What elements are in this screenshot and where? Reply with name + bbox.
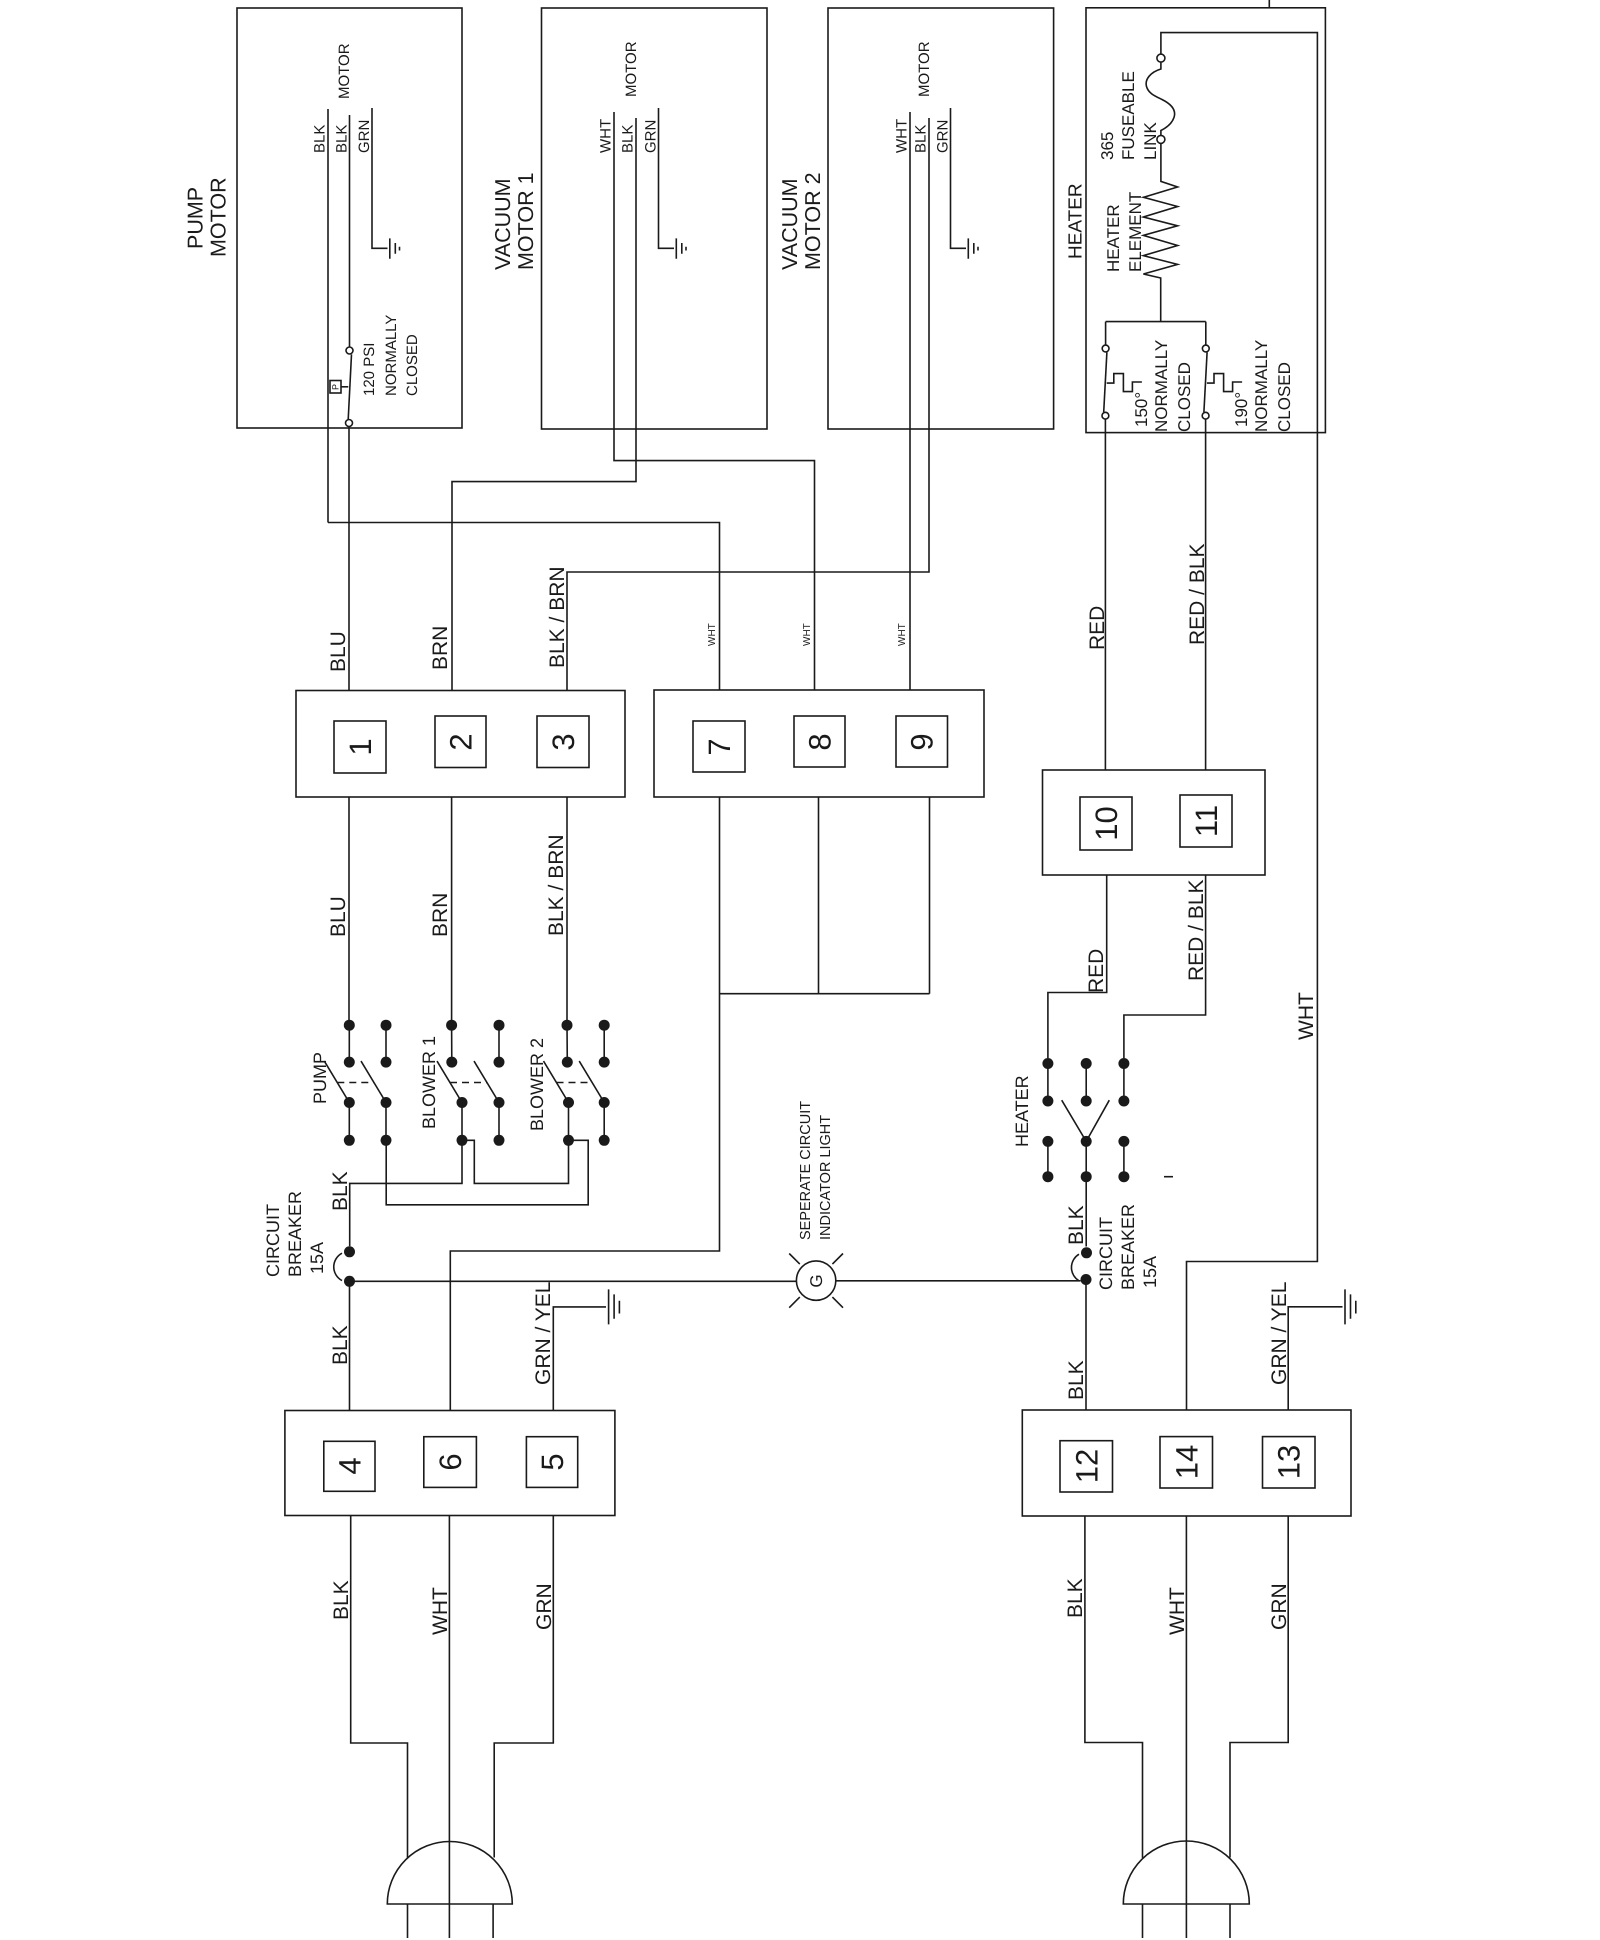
- svg-text:RED / BLK: RED / BLK: [1186, 543, 1209, 645]
- svg-text:G: G: [807, 1274, 826, 1287]
- svg-text:BLK: BLK: [329, 1171, 352, 1211]
- svg-text:WHT: WHT: [894, 119, 911, 153]
- svg-text:9: 9: [905, 733, 940, 750]
- svg-text:10: 10: [1089, 806, 1124, 840]
- svg-text:PUMP: PUMP: [310, 1052, 330, 1104]
- svg-text:GRN: GRN: [1268, 1583, 1291, 1630]
- svg-text:1: 1: [343, 738, 378, 755]
- svg-text:CLOSED: CLOSED: [404, 334, 421, 396]
- svg-text:VACUUM: VACUUM: [778, 178, 802, 270]
- svg-text:HEATER: HEATER: [1012, 1075, 1032, 1147]
- svg-text:GRN: GRN: [935, 120, 952, 153]
- svg-text:RED: RED: [1085, 949, 1108, 993]
- svg-text:BLK: BLK: [334, 125, 351, 153]
- svg-text:BLK: BLK: [329, 1325, 352, 1365]
- svg-text:BLK: BLK: [913, 125, 930, 153]
- svg-text:FUSEABLE: FUSEABLE: [1119, 71, 1138, 160]
- svg-text:MOTOR: MOTOR: [207, 177, 231, 257]
- svg-text:3: 3: [546, 733, 581, 750]
- svg-text:WHT: WHT: [598, 119, 615, 153]
- svg-text:BREAKER: BREAKER: [285, 1191, 305, 1277]
- svg-text:BLK: BLK: [330, 1580, 353, 1620]
- svg-text:8: 8: [803, 733, 838, 750]
- svg-text:BRN: BRN: [429, 626, 452, 670]
- svg-text:SEPERATE CIRCUIT: SEPERATE CIRCUIT: [798, 1101, 814, 1240]
- svg-text:6: 6: [433, 1453, 468, 1470]
- svg-text:P: P: [331, 384, 341, 390]
- svg-text:MOTOR: MOTOR: [623, 41, 640, 97]
- svg-text:NORMALLY: NORMALLY: [1252, 340, 1271, 432]
- svg-text:365: 365: [1098, 132, 1117, 160]
- svg-text:LINK: LINK: [1141, 122, 1160, 160]
- svg-text:BLK: BLK: [1065, 1205, 1088, 1245]
- svg-text:BLU: BLU: [327, 631, 350, 672]
- svg-text:12: 12: [1070, 1449, 1105, 1483]
- svg-text:2: 2: [444, 733, 479, 750]
- svg-text:RED: RED: [1086, 606, 1109, 650]
- svg-text:MOTOR: MOTOR: [916, 41, 933, 97]
- svg-text:GRN: GRN: [356, 120, 373, 153]
- svg-text:BLK: BLK: [620, 125, 637, 153]
- svg-text:WHT: WHT: [429, 1587, 452, 1635]
- svg-text:11: 11: [1189, 805, 1224, 837]
- svg-text:BLK / BRN: BLK / BRN: [545, 834, 568, 936]
- svg-text:HEATER: HEATER: [1066, 183, 1087, 259]
- svg-text:RED / BLK: RED / BLK: [1185, 879, 1208, 981]
- svg-text:VACUUM: VACUUM: [491, 178, 515, 270]
- svg-text:WHT: WHT: [802, 623, 813, 646]
- svg-text:NORMALLY: NORMALLY: [383, 315, 400, 396]
- svg-text:GRN / YEL: GRN / YEL: [1268, 1282, 1291, 1385]
- svg-text:CIRCUIT: CIRCUIT: [1096, 1217, 1116, 1290]
- svg-text:BLK: BLK: [1065, 1360, 1088, 1400]
- svg-text:WHT: WHT: [897, 623, 908, 646]
- svg-text:120 PSI: 120 PSI: [361, 343, 378, 396]
- svg-text:4: 4: [333, 1457, 368, 1474]
- svg-text:15A: 15A: [307, 1242, 327, 1274]
- svg-text:MOTOR: MOTOR: [336, 43, 353, 99]
- svg-text:WHT: WHT: [707, 623, 718, 646]
- svg-text:BLK: BLK: [1064, 1578, 1087, 1618]
- svg-text:15A: 15A: [1140, 1256, 1160, 1288]
- svg-text:MOTOR 1: MOTOR 1: [514, 172, 538, 270]
- svg-text:BLK: BLK: [312, 125, 329, 153]
- svg-text:14: 14: [1170, 1445, 1205, 1479]
- svg-text:HEATER: HEATER: [1104, 204, 1123, 272]
- svg-text:BLK / BRN: BLK / BRN: [546, 566, 569, 668]
- svg-text:CLOSED: CLOSED: [1175, 362, 1194, 432]
- svg-text:GRN: GRN: [533, 1583, 556, 1630]
- svg-text:7: 7: [702, 738, 737, 755]
- svg-text:NORMALLY: NORMALLY: [1152, 340, 1171, 432]
- svg-text:GRN: GRN: [643, 120, 660, 153]
- svg-text:150°: 150°: [1132, 392, 1151, 427]
- svg-text:CLOSED: CLOSED: [1275, 362, 1294, 432]
- svg-text:13: 13: [1272, 1445, 1307, 1479]
- svg-text:CIRCUIT: CIRCUIT: [263, 1204, 283, 1277]
- svg-text:INDICATOR LIGHT: INDICATOR LIGHT: [818, 1115, 834, 1240]
- svg-text:WHT: WHT: [1295, 992, 1318, 1040]
- svg-text:5: 5: [535, 1453, 570, 1470]
- svg-text:ELEMENT: ELEMENT: [1126, 192, 1145, 272]
- svg-text:BREAKER: BREAKER: [1118, 1204, 1138, 1290]
- svg-text:GRN / YEL: GRN / YEL: [532, 1282, 555, 1385]
- svg-text:BLU: BLU: [327, 896, 350, 937]
- svg-text:BLOWER 1: BLOWER 1: [419, 1036, 439, 1129]
- svg-text:MOTOR 2: MOTOR 2: [801, 172, 825, 270]
- svg-text:BRN: BRN: [429, 893, 452, 937]
- svg-text:190°: 190°: [1232, 392, 1251, 427]
- svg-text:PUMP: PUMP: [184, 187, 208, 249]
- svg-text:WHT: WHT: [1166, 1587, 1189, 1635]
- svg-text:BLOWER 2: BLOWER 2: [527, 1038, 547, 1131]
